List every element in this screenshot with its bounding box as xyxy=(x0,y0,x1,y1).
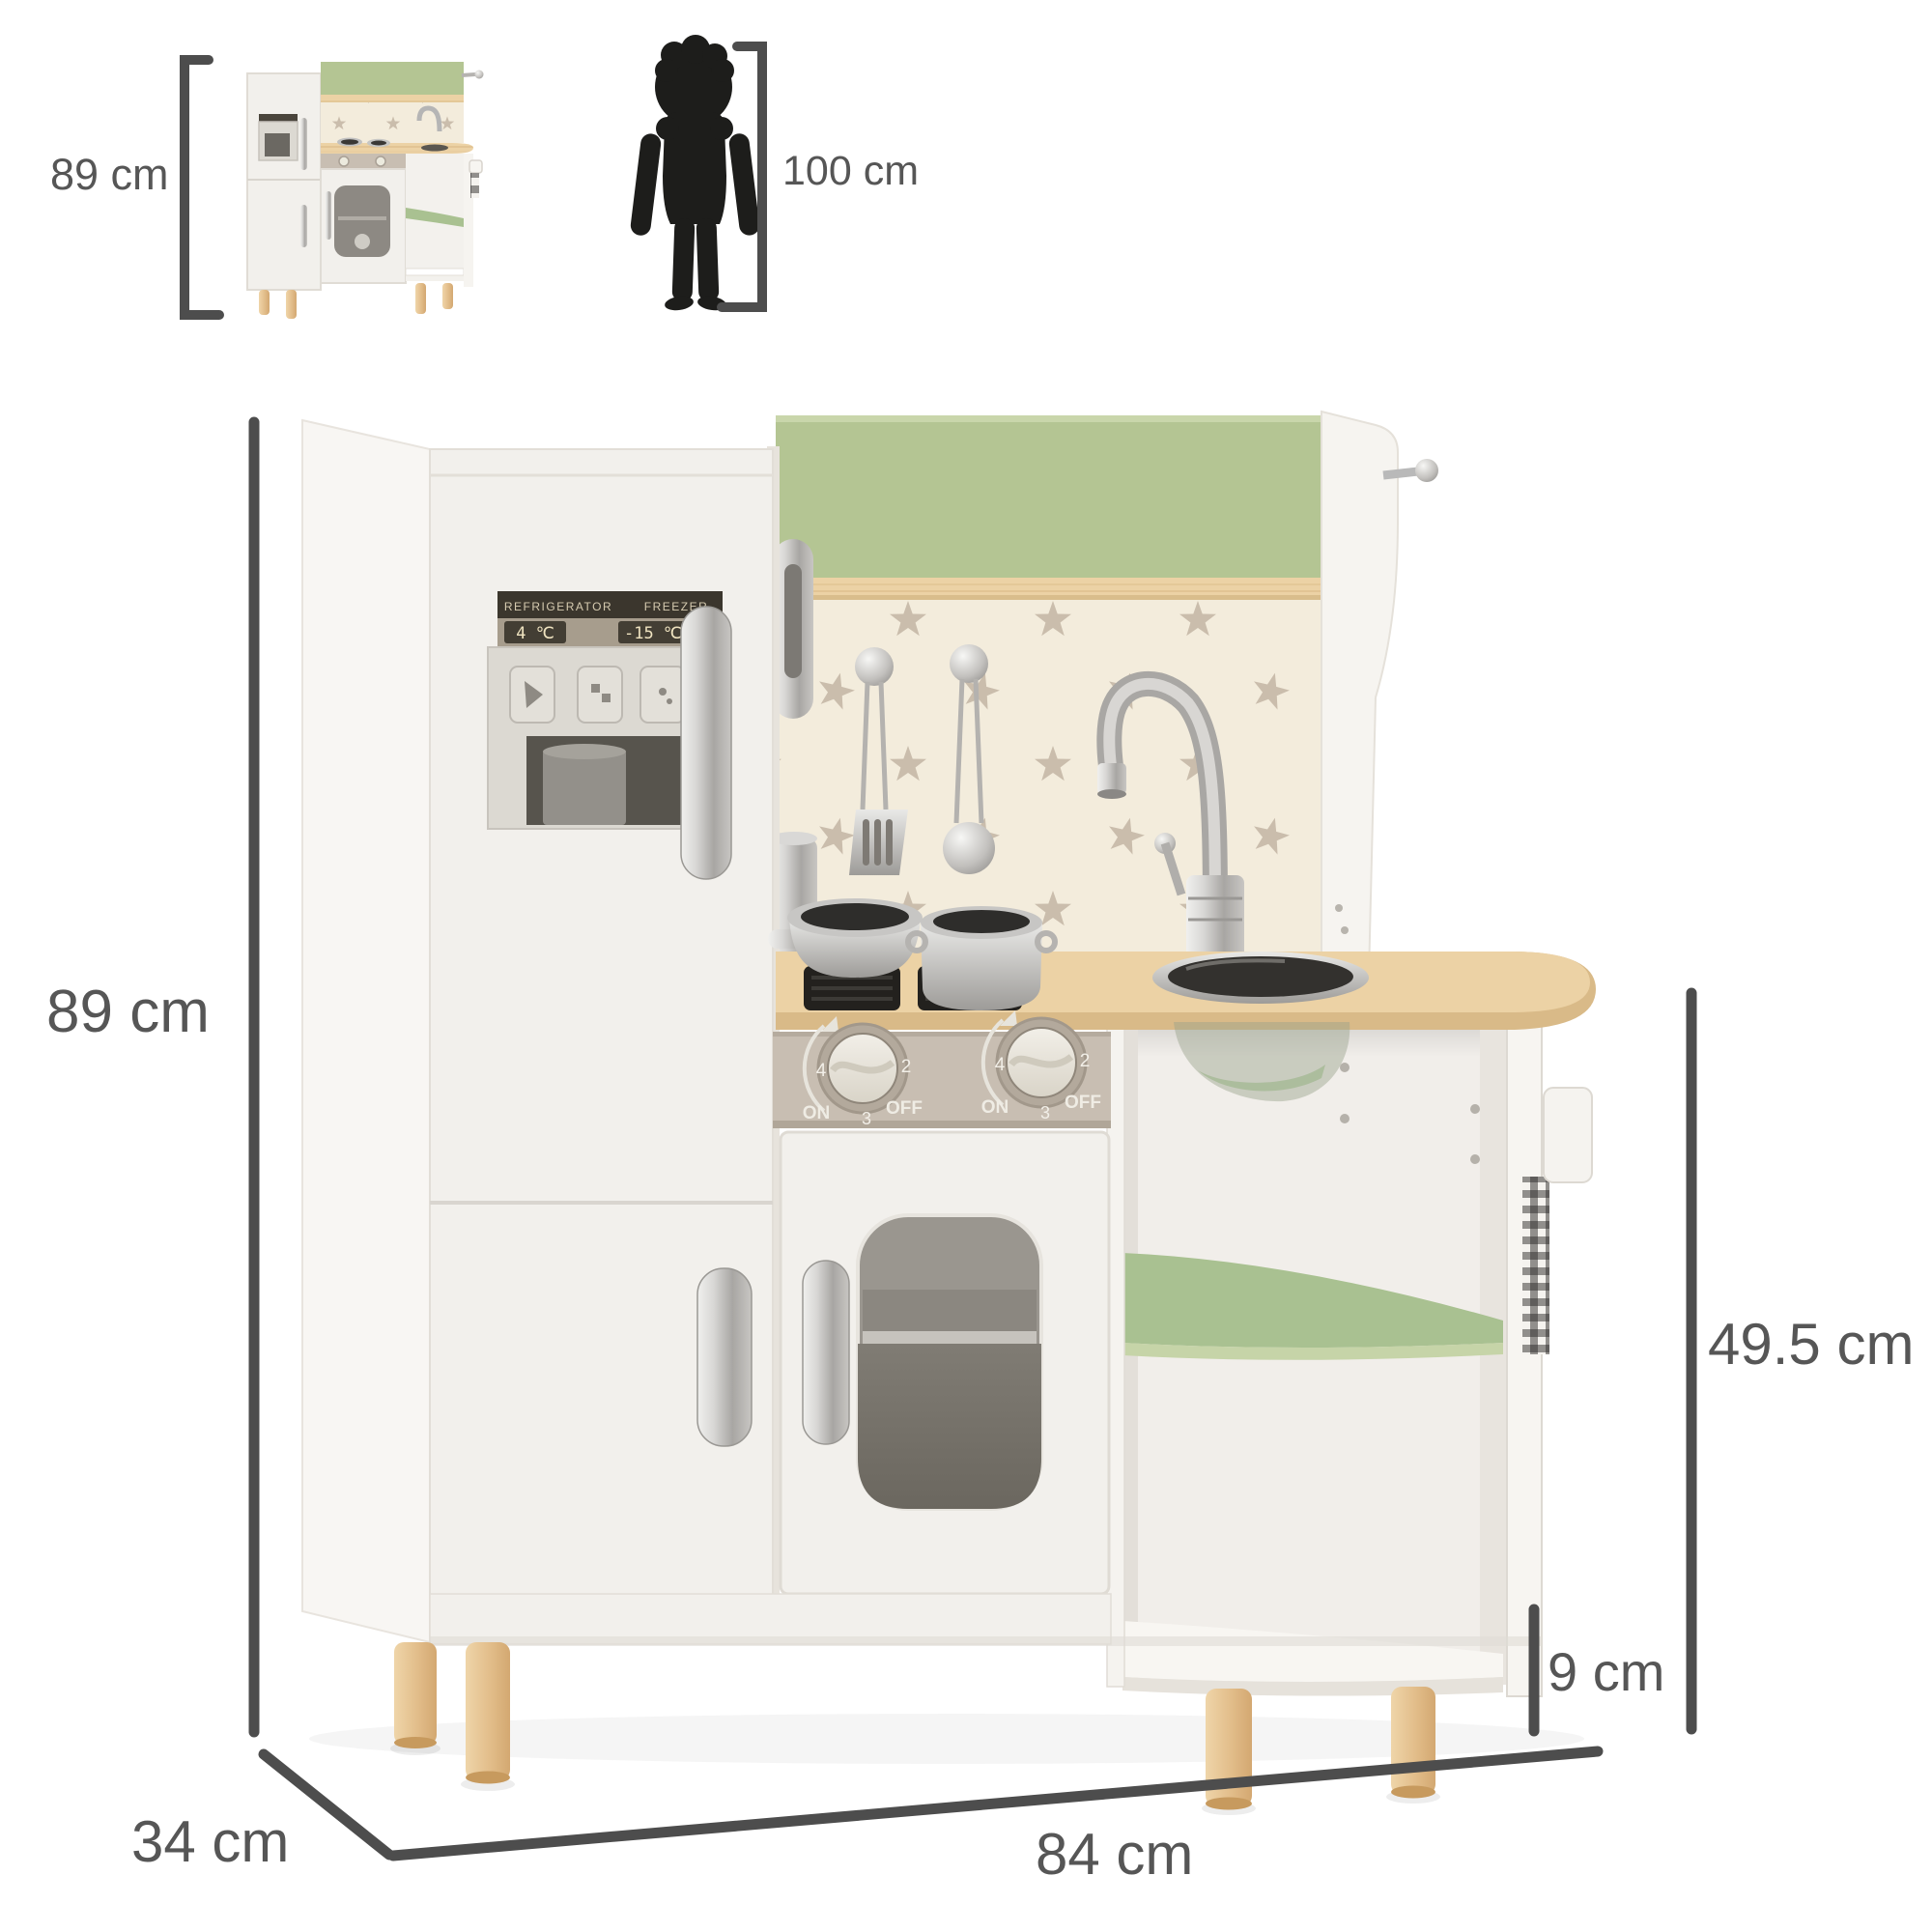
utensil-hook-icon xyxy=(950,644,988,683)
thumb-control-panel xyxy=(321,154,406,169)
knob-number: 4 xyxy=(995,1055,1006,1075)
leg xyxy=(1206,1689,1252,1810)
hanging-ladle-icon xyxy=(943,822,995,874)
leg xyxy=(394,1642,437,1748)
thumb-towel xyxy=(470,173,479,198)
width-label: 84 cm xyxy=(1036,1822,1193,1887)
utensil-hook-icon xyxy=(855,647,894,686)
refrigerator-label: REFRIGERATOR xyxy=(504,600,612,613)
child-height-reference: 100 cm xyxy=(630,35,919,312)
thumb-backsplash xyxy=(321,102,464,143)
thumbnail-height-label: 89 cm xyxy=(50,150,169,199)
side-support-panel xyxy=(1507,1020,1542,1696)
oven-door-handle xyxy=(803,1261,849,1444)
thumb-side-peg xyxy=(475,71,484,79)
height-label: 89 cm xyxy=(46,979,210,1045)
leg-height-label: 9 cm xyxy=(1548,1641,1664,1702)
fridge-side-panel xyxy=(302,420,430,1642)
refrigerator-temp: 4 ℃ xyxy=(516,624,554,643)
knob-off-label: OFF xyxy=(1065,1093,1101,1113)
oven-window xyxy=(858,1215,1041,1509)
freezer-temp: -15 ℃ xyxy=(624,624,682,643)
leg xyxy=(1391,1687,1435,1799)
knob-number: 4 xyxy=(816,1061,827,1081)
oven-door xyxy=(781,1132,1109,1594)
gingham-towel xyxy=(1522,1177,1549,1354)
leg xyxy=(466,1642,510,1784)
knob-on-label: ON xyxy=(803,1103,831,1123)
diagram-canvas: 89 cm 100 cm xyxy=(0,0,1932,1932)
knob-off-label: OFF xyxy=(886,1098,923,1119)
child-silhouette-icon xyxy=(630,35,761,312)
depth-label: 34 cm xyxy=(131,1809,289,1874)
cooking-pot xyxy=(908,906,1055,1010)
hutch-side-panel xyxy=(1321,412,1398,1016)
open-cabinet xyxy=(1122,1016,1507,1696)
hutch-green-panel xyxy=(776,415,1321,580)
product-dimension-diagram: 89 cm 100 cm xyxy=(0,0,1932,1932)
knob-number: 3 xyxy=(862,1109,871,1128)
knob-on-label: ON xyxy=(981,1097,1009,1118)
thumbnail-height-bracket xyxy=(185,60,219,315)
product-thumbnail: 89 cm xyxy=(50,60,484,319)
dispenser-cup xyxy=(543,750,626,825)
side-peg xyxy=(1383,471,1418,475)
thumb-fridge xyxy=(247,73,321,290)
knob-number: 2 xyxy=(901,1057,912,1077)
ice-cube-icon xyxy=(591,684,600,693)
play-kitchen: REFRIGERATOR FREEZER 4 ℃ -15 ℃ xyxy=(302,412,1596,1815)
fridge-lower-door-handle xyxy=(697,1268,752,1446)
knob-number: 2 xyxy=(1080,1051,1091,1071)
child-height-label: 100 cm xyxy=(782,148,919,194)
water-icon xyxy=(659,688,667,696)
width-dimension-line xyxy=(393,1751,1598,1856)
towel-holder xyxy=(1544,1088,1592,1182)
knob-number: 3 xyxy=(1040,1103,1050,1122)
counter-height-label: 49.5 cm xyxy=(1708,1312,1914,1377)
fridge-upper-door-handle xyxy=(681,607,731,879)
thumb-green-panel xyxy=(321,62,464,95)
fridge-unit: REFRIGERATOR FREEZER 4 ℃ -15 ℃ xyxy=(302,420,773,1642)
